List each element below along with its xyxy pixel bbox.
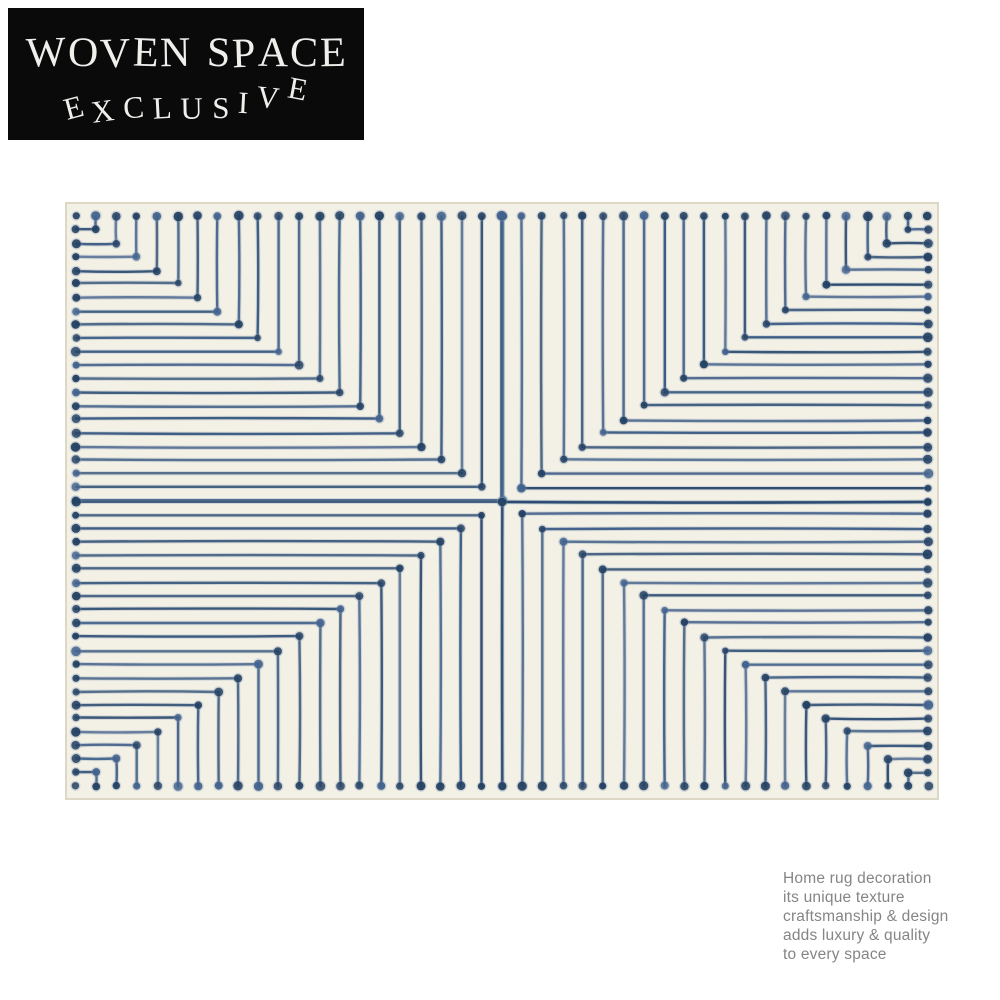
rug-pattern	[67, 204, 937, 798]
product-image-page: WOVEN SPACE EXCLUSIVE Home rug decoratio…	[0, 0, 1000, 1000]
brand-name: WOVEN SPACE	[25, 32, 346, 74]
caption-line: Home rug decoration	[783, 869, 949, 888]
brand-banner: WOVEN SPACE EXCLUSIVE	[8, 8, 364, 140]
caption-line: adds luxury & quality	[783, 926, 949, 945]
rug-photo	[65, 202, 939, 800]
caption-line: to every space	[783, 945, 949, 964]
caption-line: its unique texture	[783, 888, 949, 907]
brand-tagline: EXCLUSIVE	[59, 81, 314, 125]
product-caption: Home rug decoration its unique texture c…	[783, 869, 949, 964]
caption-line: craftsmanship & design	[783, 907, 949, 926]
